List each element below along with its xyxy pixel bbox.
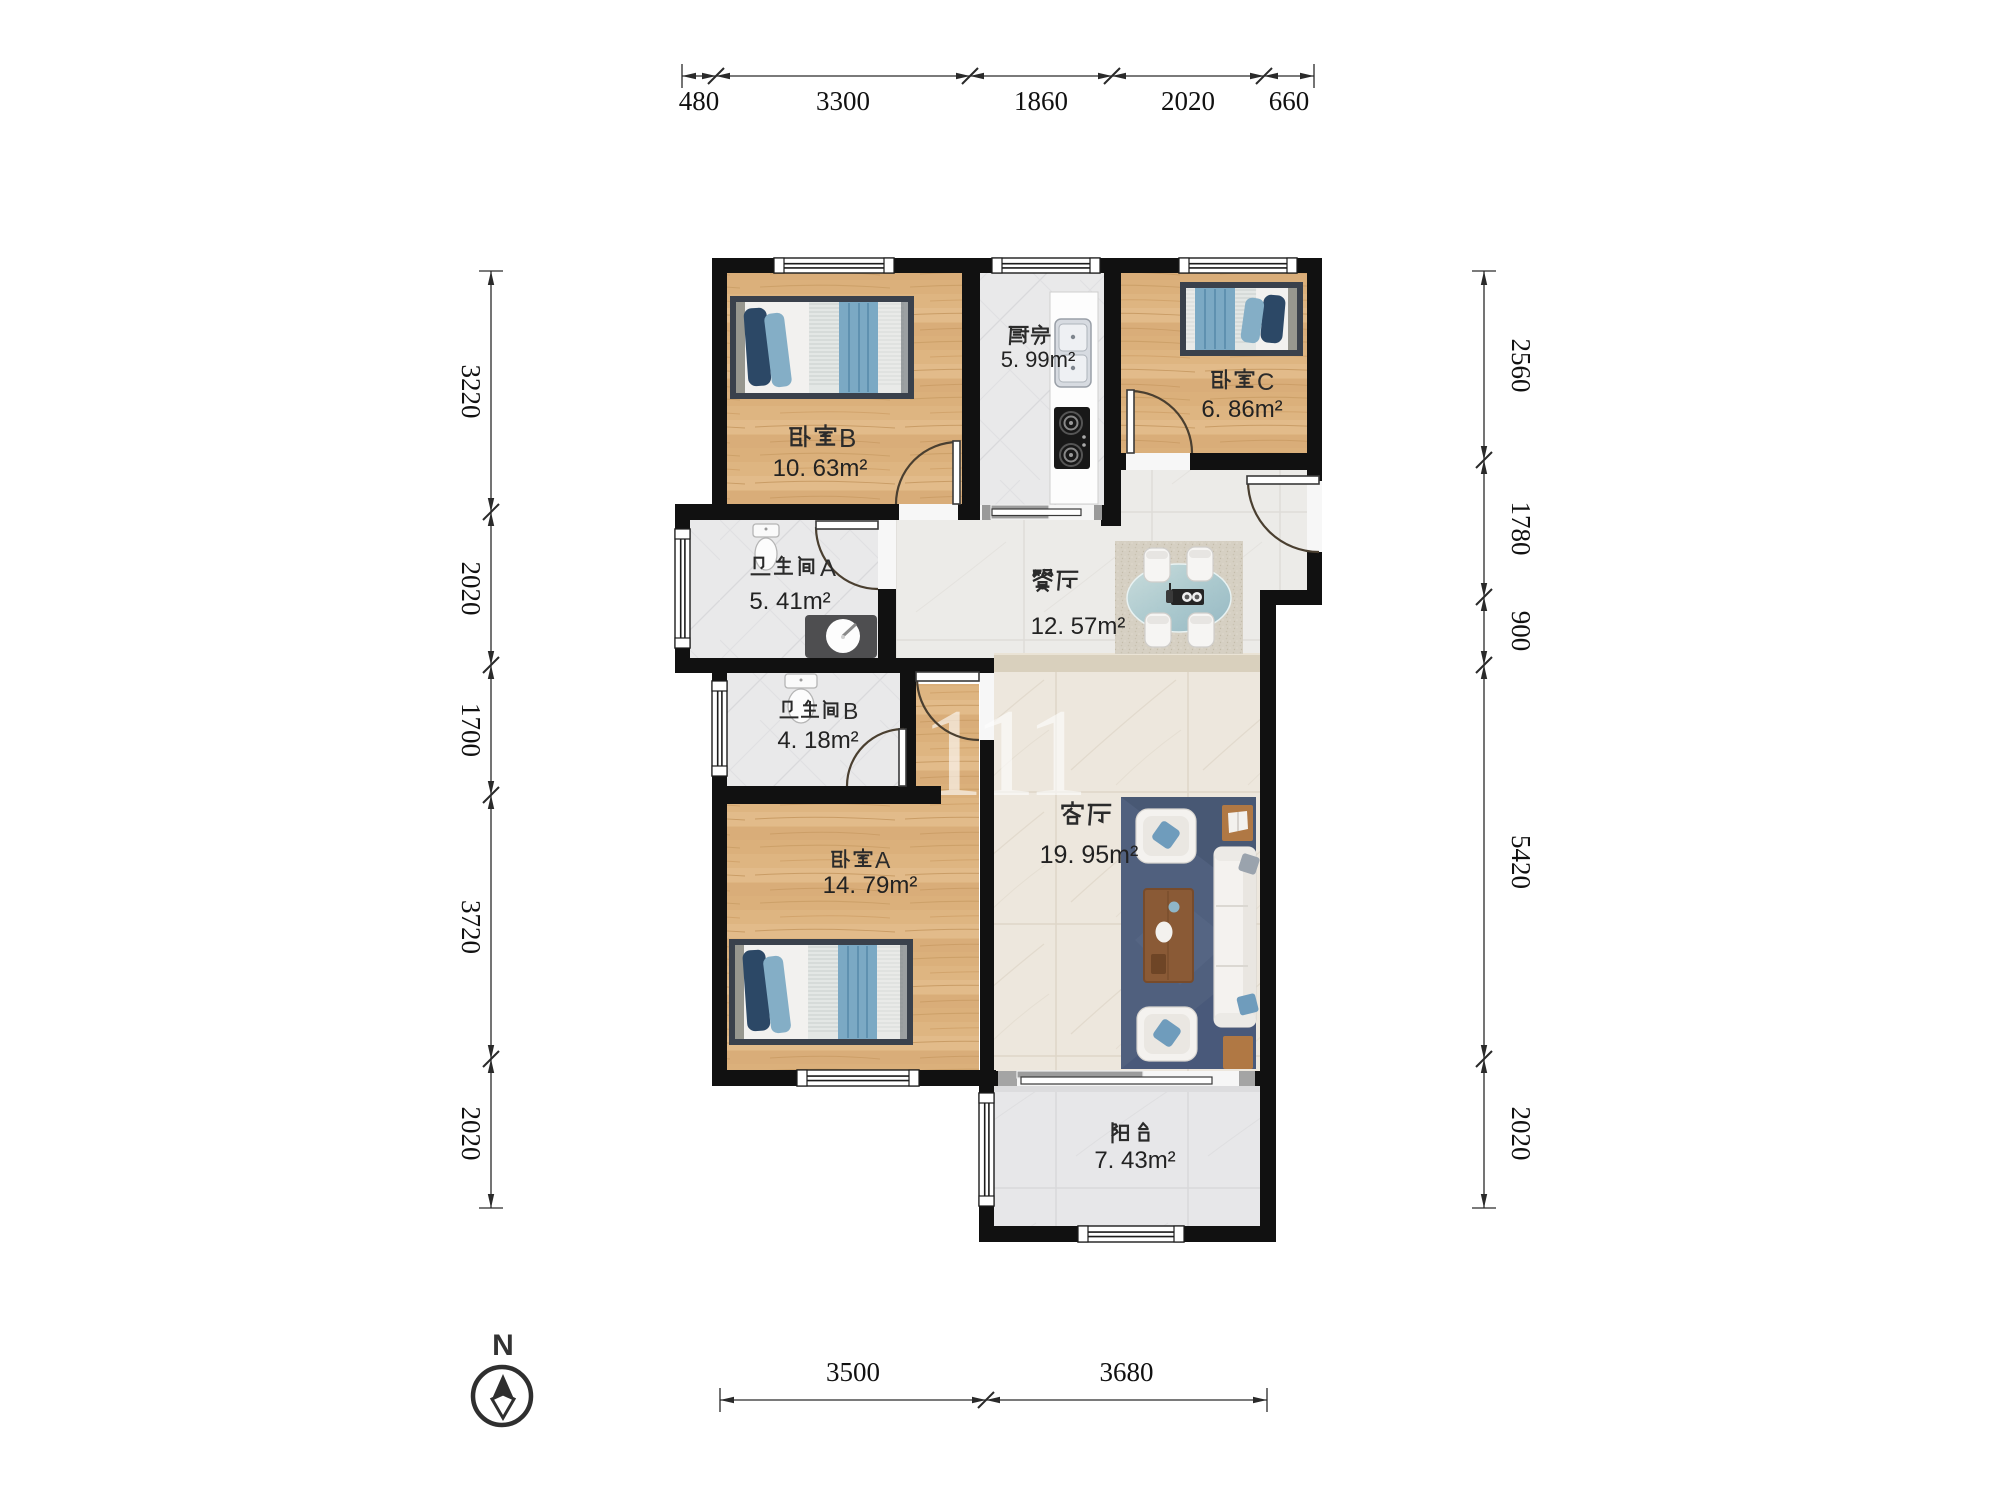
- svg-text:2020: 2020: [1506, 1107, 1536, 1161]
- svg-text:2020: 2020: [456, 1107, 486, 1161]
- svg-text:19. 95m²: 19. 95m²: [1040, 841, 1139, 869]
- svg-text:111: 111: [921, 684, 1083, 823]
- svg-text:1860: 1860: [1014, 86, 1068, 116]
- svg-text:7. 43m²: 7. 43m²: [1094, 1147, 1175, 1174]
- svg-text:B: B: [843, 698, 858, 724]
- svg-text:3680: 3680: [1100, 1357, 1154, 1387]
- svg-text:3500: 3500: [826, 1357, 880, 1387]
- svg-text:N: N: [492, 1329, 514, 1362]
- svg-text:14. 79m²: 14. 79m²: [823, 872, 918, 899]
- svg-text:5420: 5420: [1506, 835, 1536, 889]
- svg-text:2560: 2560: [1506, 339, 1536, 393]
- svg-text:660: 660: [1269, 86, 1310, 116]
- svg-text:3300: 3300: [816, 86, 870, 116]
- svg-text:5. 99m²: 5. 99m²: [1001, 347, 1076, 372]
- svg-text:3220: 3220: [456, 365, 486, 419]
- svg-text:900: 900: [1506, 611, 1536, 652]
- svg-text:1700: 1700: [456, 703, 486, 757]
- svg-text:12. 57m²: 12. 57m²: [1031, 613, 1126, 640]
- svg-text:4. 18m²: 4. 18m²: [777, 727, 858, 754]
- svg-text:1780: 1780: [1506, 502, 1536, 556]
- svg-text:2020: 2020: [456, 562, 486, 616]
- svg-text:6. 86m²: 6. 86m²: [1201, 396, 1282, 423]
- svg-text:A: A: [820, 555, 836, 582]
- svg-text:10. 63m²: 10. 63m²: [773, 455, 868, 482]
- svg-text:B: B: [839, 423, 856, 453]
- svg-text:480: 480: [679, 86, 720, 116]
- svg-text:5. 41m²: 5. 41m²: [749, 588, 830, 615]
- svg-text:3720: 3720: [456, 900, 486, 954]
- svg-text:A: A: [875, 847, 891, 873]
- svg-text:C: C: [1257, 369, 1274, 396]
- svg-text:2020: 2020: [1161, 86, 1215, 116]
